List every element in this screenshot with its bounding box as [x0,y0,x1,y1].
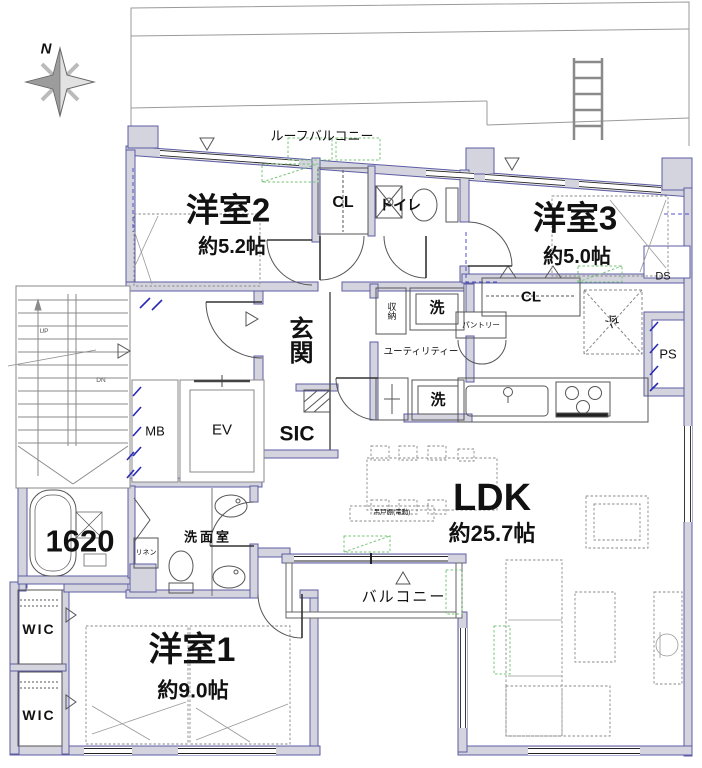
room2-name: 洋室2 [186,194,270,227]
utility-label: ユーティリティー [384,347,459,357]
stairs-down-label: DN [96,378,105,385]
elevator-label: EV [212,423,232,438]
sic-label: SIC [279,424,314,445]
floorplan: ルーフバルコニー 洋室2 約5.2帖 CL トイレ 洋室3 約5.0帖 玄関 収… [0,0,702,768]
ldk-size: 約25.7帖 [449,523,536,545]
bath-size-label: 1620 [46,526,115,557]
entrance-label: 玄関 [286,316,310,364]
room3-name: 洋室3 [533,202,617,235]
room1-name: 洋室1 [149,633,236,667]
room3-size: 約5.0帖 [543,247,611,267]
closet-hall-label: CL [332,195,353,211]
toilet-label: トイレ [379,198,421,212]
stairs-up-label: UP [39,329,48,336]
wic-upper-label: WIC [22,622,55,636]
compass-north-label: N [41,42,52,57]
washer-upper-label: 洗 [429,301,444,316]
room2-size: 約5.2帖 [198,237,266,257]
washer-lower-label: 洗 [430,393,445,408]
compass-icon [26,48,94,116]
hanging-shelf-label: 吊戸棚(電動) [374,510,411,517]
linen-label: リネン [136,550,157,557]
shuno-label: 収納 [387,302,396,320]
ladder-icon [574,58,602,140]
wic-lower-label: WIC [22,708,55,722]
closet-west3-label: CL [521,290,541,305]
room1-size: 約9.0帖 [157,681,228,702]
pantry-label: パントリー [462,321,500,329]
duct-space-label: DS [655,272,670,283]
stairs [8,286,130,488]
meter-box-label: MB [145,425,165,438]
ldk-name: LDK [453,479,531,517]
washroom-label: 洗面室 [184,531,232,544]
roof-balcony-label: ルーフバルコニー [271,130,374,143]
pipe-space-label: PS [659,348,676,361]
balcony-label: バルコニー [362,590,447,605]
